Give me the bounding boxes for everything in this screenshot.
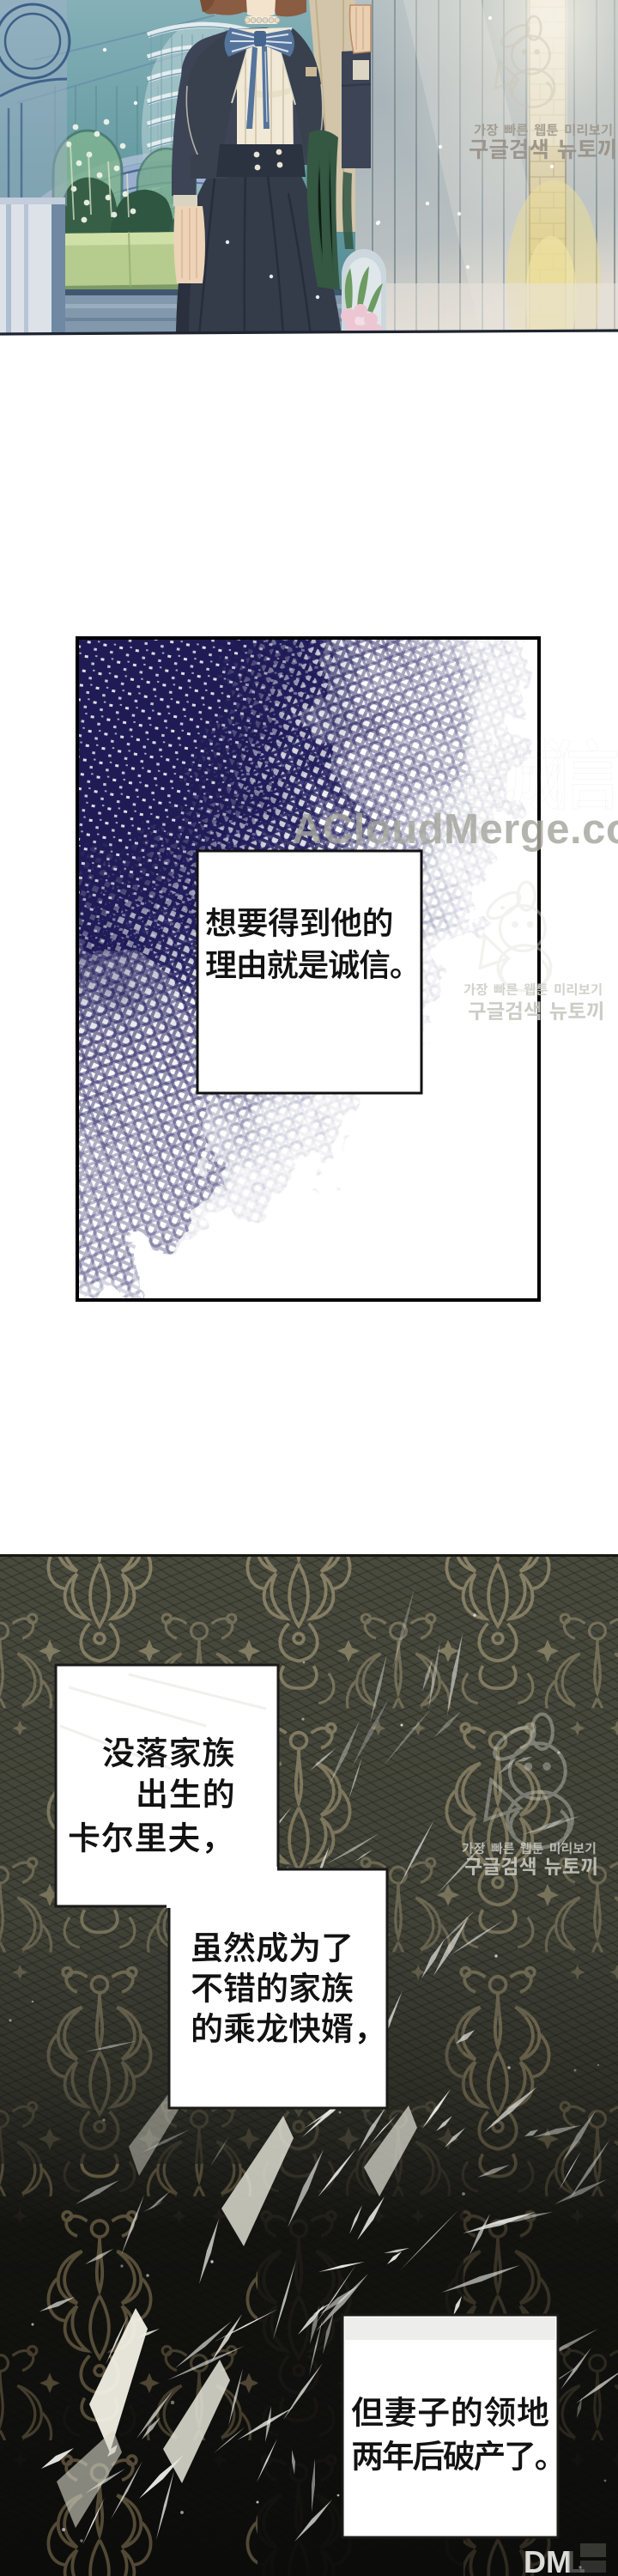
svg-text:ACloudMerge.com: ACloudMerge.com xyxy=(292,806,618,853)
svg-text:DM: DM xyxy=(524,2544,572,2576)
